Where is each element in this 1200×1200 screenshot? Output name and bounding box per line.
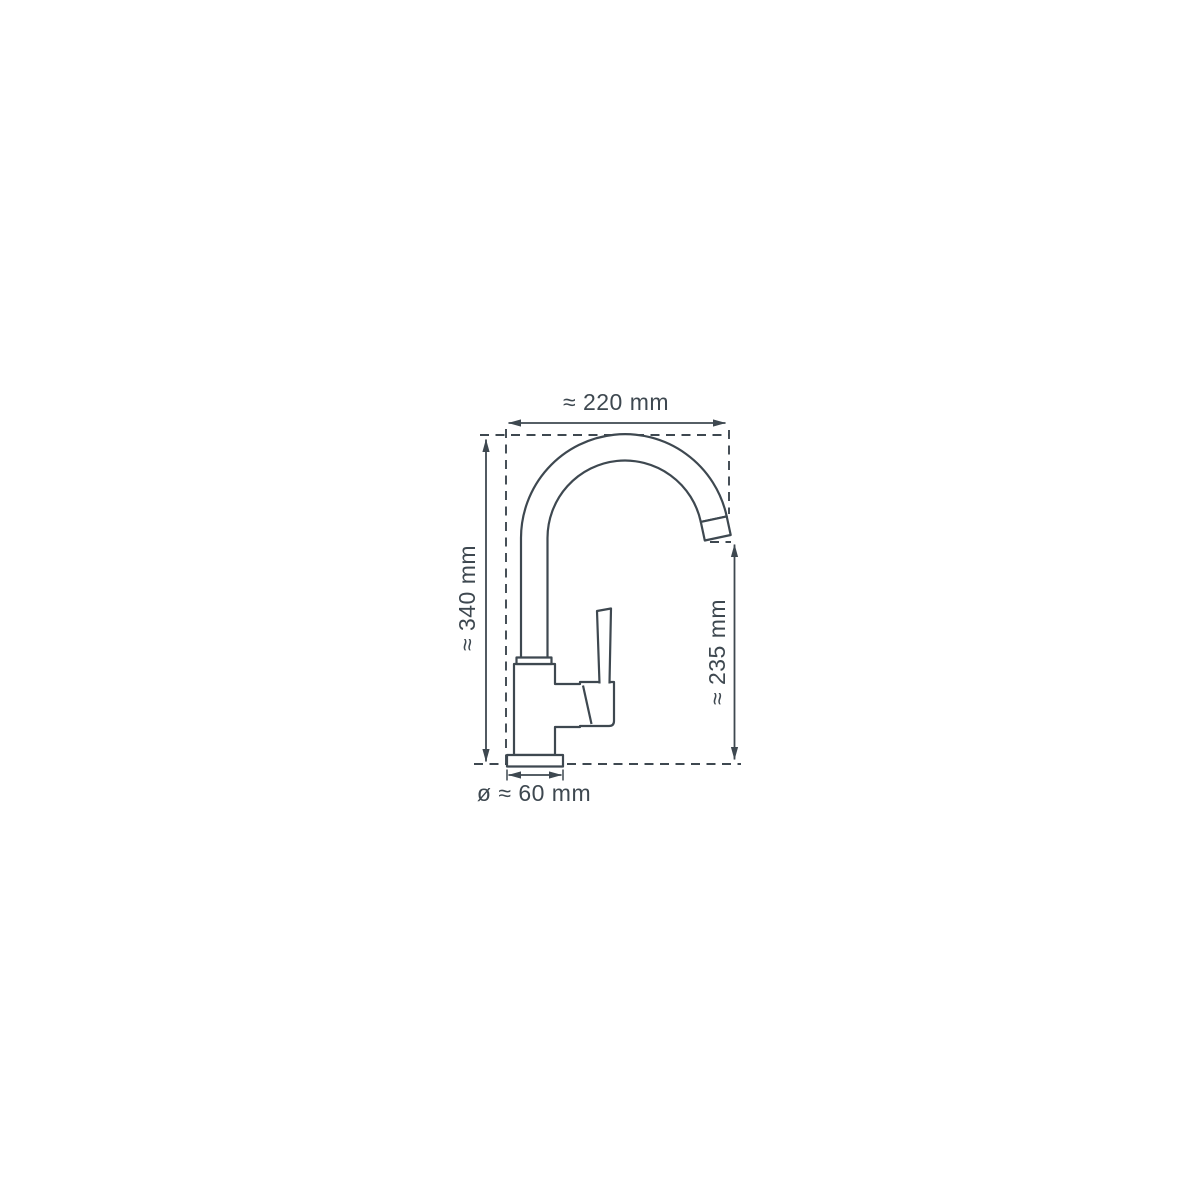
faucet-dimension-diagram-page: ≈ 220 mm ≈ 340 mm ≈ 235 mm ø ≈ 60 mm [0, 0, 1200, 1200]
faucet-outline [507, 434, 731, 766]
dimension-label-spout-height: ≈ 235 mm [704, 599, 730, 705]
dimension-label-spout-width: ≈ 220 mm [563, 389, 669, 415]
faucet-dimension-diagram: ≈ 220 mm ≈ 340 mm ≈ 235 mm ø ≈ 60 mm [0, 0, 1200, 1200]
faucet-aerator-tip [701, 516, 731, 540]
faucet-spout-tube [521, 434, 727, 660]
dimension-label-total-height: ≈ 340 mm [454, 545, 480, 651]
faucet-lever-handle [597, 609, 611, 684]
dimension-label-base-diameter: ø ≈ 60 mm [477, 780, 591, 806]
faucet-collar [517, 658, 552, 665]
faucet-base-plate [507, 755, 563, 767]
